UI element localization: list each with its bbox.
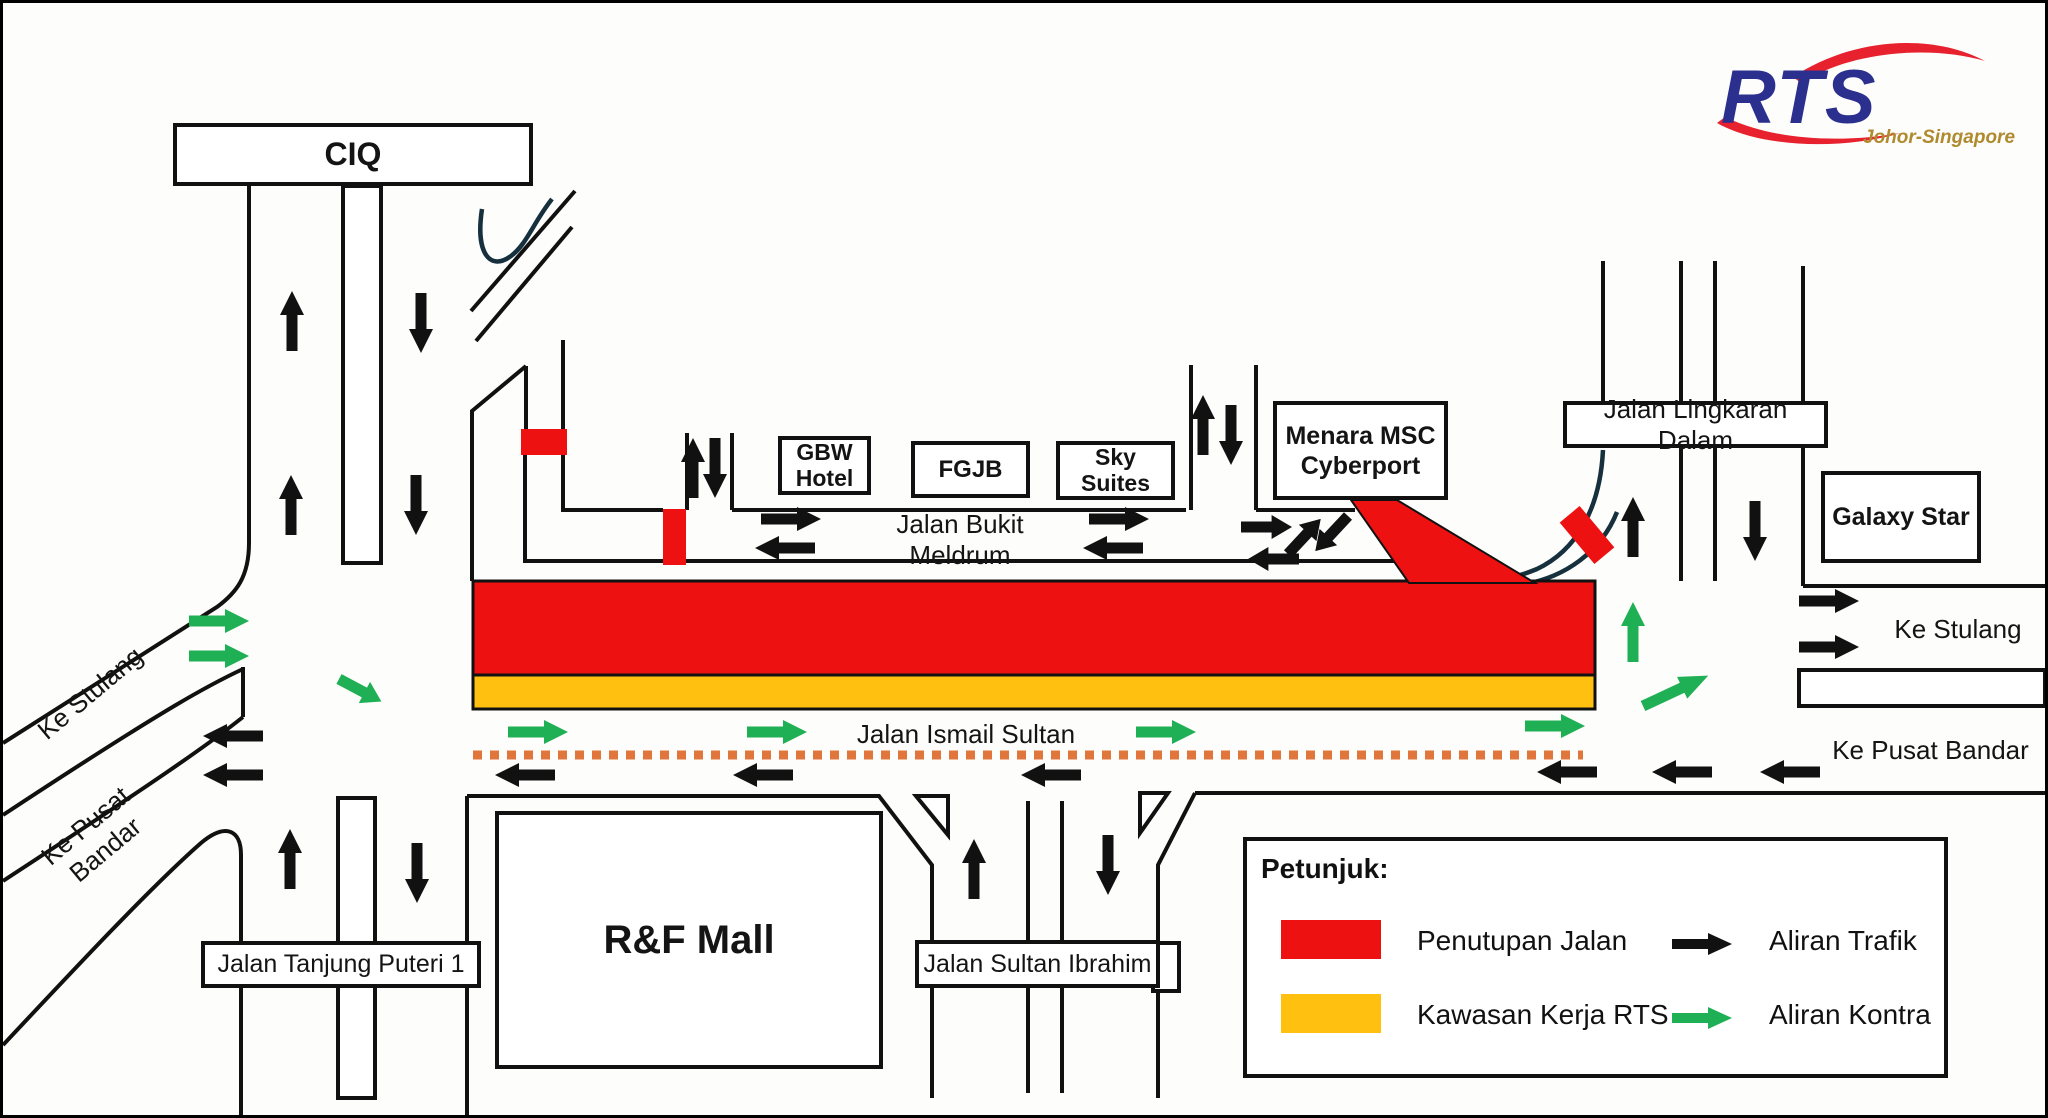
closure-legend-label: Penutupan Jalan <box>1417 925 1627 957</box>
contra-arrow-up-right <box>1638 665 1713 717</box>
traffic-arrow-up <box>962 839 986 899</box>
contra-arrow-down-right <box>333 668 387 712</box>
lingkaran-road-lower <box>1681 448 1803 586</box>
jalan-tanjung-puteri-text: Jalan Tanjung Puteri 1 <box>218 950 465 979</box>
ke-stulang-right-label: Ke Stulang <box>1878 614 2038 644</box>
jalan-sultan-ibrahim-label: Jalan Sultan Ibrahim <box>915 940 1160 988</box>
ke-stulang-right-text: Ke Stulang <box>1894 614 2021 645</box>
logo-brand-text: RTS <box>1721 55 1878 140</box>
traffic-arrow-left <box>1760 760 1820 784</box>
traffic-arrow-left <box>755 536 815 560</box>
jalan-lingkaran-dalam-text: Jalan Lingkaran Dalam <box>1567 394 1824 456</box>
jalan-lingkaran-dalam-label: Jalan Lingkaran Dalam <box>1563 401 1828 448</box>
sky-suites-label: Sky Suites <box>1056 441 1175 500</box>
traffic-arrow-left <box>1083 536 1143 560</box>
jalan-sultan-ibrahim-text: Jalan Sultan Ibrahim <box>924 950 1152 979</box>
closure-swatch <box>1281 920 1381 959</box>
meldrum-west-corner <box>472 366 526 581</box>
traffic-arrow-left <box>1021 763 1081 787</box>
traffic-arrow-down <box>405 843 429 903</box>
menara-msc-label: Menara MSC Cyberport <box>1273 401 1448 500</box>
traffic-arrow-right <box>1799 635 1859 659</box>
work-area-legend-label: Kawasan Kerja RTS <box>1417 999 1669 1031</box>
closure-block-2 <box>663 509 686 565</box>
contra-arrow-right <box>1525 714 1585 738</box>
contra-arrow-icon <box>1672 1005 1736 1031</box>
ciq-median-upper <box>343 186 381 563</box>
closure-diagonal-band <box>1351 500 1535 583</box>
fgjb-text: FGJB <box>938 456 1002 484</box>
traffic-arrow-left <box>733 763 793 787</box>
traffic-arrow-up <box>279 475 303 535</box>
y-island-right <box>1140 793 1168 833</box>
traffic-arrow-up <box>681 438 705 498</box>
jalan-tanjung-puteri-label: Jalan Tanjung Puteri 1 <box>201 941 481 988</box>
meldrum-north-edge-w <box>563 455 663 510</box>
legend-title: Petunjuk: <box>1261 853 1389 885</box>
ke-pusat-bandar-right-text: Ke Pusat Bandar <box>1832 735 2029 766</box>
contra-arrow-right <box>1136 720 1196 744</box>
galaxy-star-text: Galaxy Star <box>1832 503 1970 532</box>
traffic-arrow-up <box>1191 395 1215 455</box>
contra-arrow-right <box>189 609 249 633</box>
jalan-ismail-sultan-label: Jalan Ismail Sultan <box>851 719 1081 749</box>
rts-work-zone-bar <box>473 675 1595 709</box>
traffic-flow-label: Aliran Trafik <box>1769 925 1917 957</box>
traffic-arrow-right <box>1241 515 1292 539</box>
traffic-arrow-down <box>1096 835 1120 895</box>
lingkaran-road-upper <box>1603 261 1803 401</box>
traffic-arrow-left <box>203 763 263 787</box>
contra-arrow-right <box>747 720 807 744</box>
jalan-ismail-sultan-text: Jalan Ismail Sultan <box>857 719 1075 750</box>
work-area-swatch <box>1281 994 1381 1033</box>
jalan-bukit-meldrum-label: Jalan Bukit Meldrum <box>845 525 1075 555</box>
ciq-label: CIQ <box>173 123 533 186</box>
y-island-left <box>916 796 948 835</box>
traffic-arrow-left <box>203 724 263 748</box>
rf-mall-text: R&F Mall <box>603 918 774 963</box>
traffic-arrow-right <box>1799 589 1859 613</box>
traffic-arrow-down <box>703 438 727 498</box>
rts-logo: RTS Johor-Singapore <box>1693 31 2033 151</box>
traffic-arrow-down <box>1743 501 1767 561</box>
stulang-median <box>1799 670 2045 706</box>
traffic-arrow-up <box>280 291 304 351</box>
gbw-hotel-label: GBW Hotel <box>778 436 871 495</box>
menara-msc-text: Menara MSC Cyberport <box>1285 421 1435 481</box>
contra-arrow-right <box>508 720 568 744</box>
closure-block-1 <box>521 429 567 455</box>
ke-pusat-bandar-right-label: Ke Pusat Bandar <box>1818 735 2043 765</box>
ciq-label-text: CIQ <box>325 136 382 173</box>
traffic-arrow-icon <box>1672 931 1736 957</box>
traffic-arrow-down <box>404 475 428 535</box>
galaxy-star-label: Galaxy Star <box>1821 471 1981 563</box>
contra-arrow-up <box>1621 602 1645 662</box>
traffic-arrow-up <box>278 829 302 889</box>
ramp-diagonals <box>471 191 575 341</box>
contra-flow-label: Aliran Kontra <box>1769 999 1931 1031</box>
logo-subtitle-text: Johor-Singapore <box>1863 127 2015 148</box>
gbw-hotel-text: GBW Hotel <box>796 440 854 491</box>
rf-mall-label: R&F Mall <box>495 811 883 1069</box>
traffic-arrow-down <box>409 293 433 353</box>
fgjb-label: FGJB <box>911 441 1030 498</box>
sky-suites-text: Sky Suites <box>1081 445 1150 496</box>
jalan-bukit-meldrum-text: Jalan Bukit Meldrum <box>845 509 1075 571</box>
traffic-arrow-up <box>1621 497 1645 557</box>
road-closure-bar <box>473 581 1595 675</box>
traffic-arrow-left <box>1652 760 1712 784</box>
traffic-diagram: CIQ GBW Hotel FGJB Sky Suites Menara MSC… <box>0 0 2048 1118</box>
contra-arrow-right <box>189 644 249 668</box>
legend-panel: Petunjuk: Penutupan Jalan Aliran Trafik … <box>1243 837 1948 1078</box>
traffic-arrow-down <box>1219 405 1243 465</box>
traffic-arrow-left <box>495 763 555 787</box>
traffic-arrow-left <box>1537 760 1597 784</box>
